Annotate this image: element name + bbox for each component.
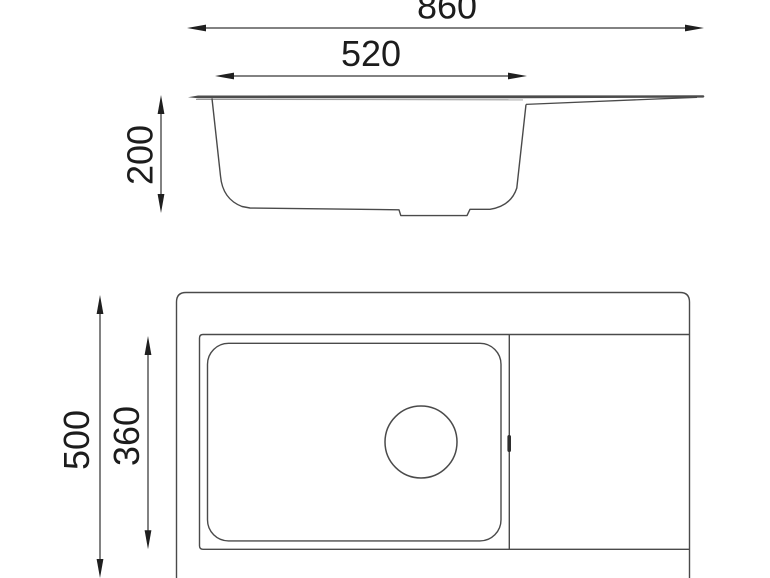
svg-text:520: 520: [341, 33, 401, 74]
svg-text:500: 500: [56, 410, 97, 470]
svg-text:360: 360: [106, 406, 147, 466]
svg-text:200: 200: [120, 125, 161, 185]
svg-text:860: 860: [417, 0, 477, 27]
